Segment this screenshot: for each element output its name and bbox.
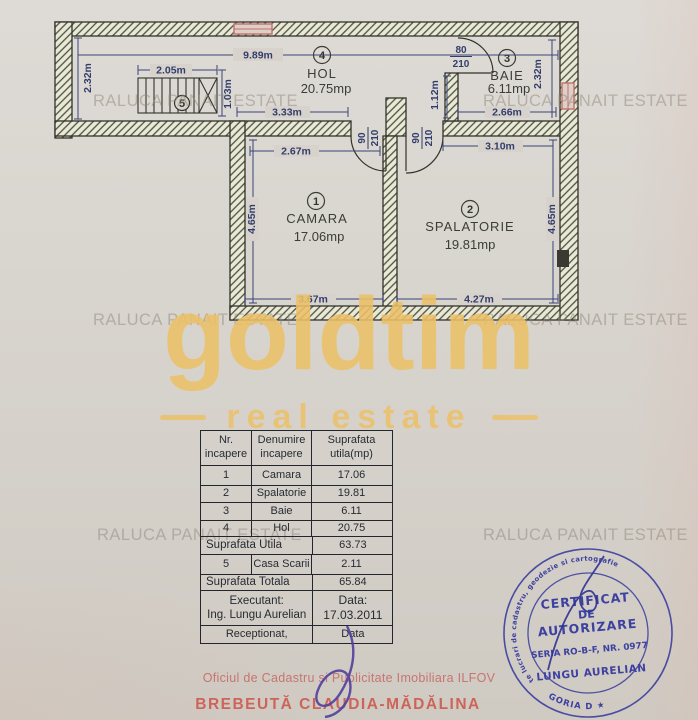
dim-spalatorie-top: 3.10m: [485, 141, 515, 153]
stamp-holder-name: LUNGU AURELIAN: [536, 662, 647, 684]
authorization-stamp: Persoana fizica autorizata de ANCPI sa e…: [487, 543, 697, 720]
watermark-text: RALUCA PANAIT ESTATE: [93, 92, 298, 111]
svg-text:80: 80: [455, 45, 467, 56]
svg-text:2: 2: [467, 204, 473, 216]
stamp-line3: AUTORIZARE: [537, 616, 638, 640]
svg-text:HOL: HOL: [307, 66, 337, 81]
room-spalatorie: 2 SPALATORIE 19.81mp: [425, 201, 514, 253]
svg-text:1: 1: [313, 196, 319, 208]
door-label-spalatorie: 90 210: [411, 127, 435, 149]
svg-text:210: 210: [453, 59, 470, 70]
svg-text:SPALATORIE: SPALATORIE: [425, 219, 514, 234]
svg-text:20.75mp: 20.75mp: [301, 81, 352, 96]
dim-spalatorie-side: 4.65m: [546, 204, 558, 234]
table-row-suprafata-totala: Suprafata Totala 65.84: [201, 575, 392, 591]
dim-left: 2.32m: [82, 63, 94, 93]
svg-text:3: 3: [504, 53, 510, 65]
table-header-row: Nr.incapere Denumireincapere Suprafataut…: [201, 431, 392, 466]
svg-text:4: 4: [319, 50, 326, 62]
table-row-suprafata-utila: Suprafata Utila 63.73: [201, 537, 392, 555]
room-hol: 4 HOL 20.75mp: [301, 47, 352, 97]
table-row-receptionat: Receptionat, Data: [201, 626, 392, 643]
table-row: 4 Hol 20.75: [201, 521, 392, 537]
svg-text:90: 90: [357, 132, 368, 144]
room-camara: 1 CAMARA 17.06mp: [286, 193, 348, 245]
svg-text:210: 210: [424, 129, 435, 146]
svg-text:19.81mp: 19.81mp: [445, 237, 496, 252]
table-row: 5 Casa Scarii 2.11: [201, 555, 392, 575]
document-page: 9.89m 2.32m 2.05m 1.03m 3.33m 2.67m 3.10…: [0, 0, 698, 720]
dim-camara-top: 2.67m: [281, 146, 311, 158]
tagline-dash: [492, 415, 538, 420]
table-row-executant: Executant: Ing. Lungu Aurelian Data: 17.…: [201, 591, 392, 626]
dim-baie-left: 1.12m: [429, 80, 441, 110]
header-denumire: Denumireincapere: [252, 431, 312, 465]
dim-baie-side: 2.32m: [532, 59, 544, 89]
dim-top: 9.89m: [243, 50, 273, 62]
table-row: 1 Camara 17.06: [201, 466, 392, 486]
header-suprafata: Suprafatautila(mp): [312, 431, 391, 465]
stamp-series: SERIA RO-B-F, NR. 0977: [531, 641, 648, 661]
door-label-camara: 90 210: [357, 127, 381, 149]
room-baie: 3 BAIE 6.11mp: [488, 50, 530, 97]
area-table: Nr.incapere Denumireincapere Suprafataut…: [200, 430, 393, 644]
svg-text:210: 210: [370, 129, 381, 146]
tagline-dash: [160, 415, 206, 420]
wall-niche: [557, 250, 569, 267]
dim-stairs-width: 2.05m: [156, 65, 186, 77]
svg-text:CAMARA: CAMARA: [286, 211, 348, 226]
door-label-baie: 80 210: [450, 45, 472, 70]
table-row: 3 Baie 6.11: [201, 503, 392, 521]
dim-camara-side: 4.65m: [246, 204, 258, 234]
svg-text:17.06mp: 17.06mp: [294, 229, 345, 244]
door-swings: [351, 38, 493, 173]
table-row: 2 Spalatorie 19.81: [201, 486, 392, 503]
header-nr: Nr.incapere: [201, 431, 252, 465]
brand-logo: goldtim: [0, 282, 698, 385]
svg-text:90: 90: [411, 132, 422, 144]
watermark-text: RALUCA PANAIT ESTATE: [483, 92, 688, 111]
